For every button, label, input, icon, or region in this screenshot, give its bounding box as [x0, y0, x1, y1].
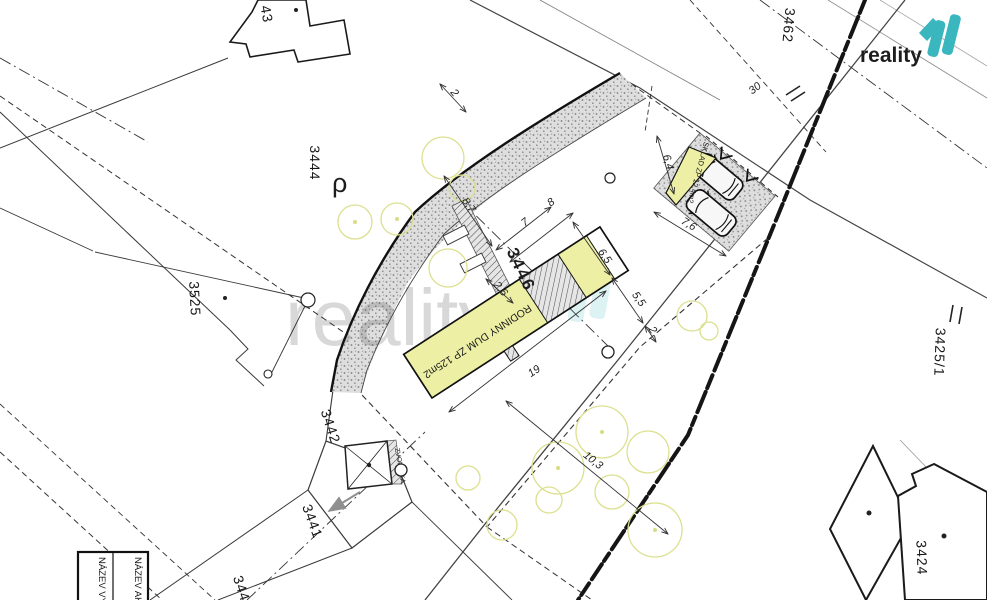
parcel-label: 3424	[913, 540, 930, 576]
dim-label: 2	[447, 86, 461, 99]
parcel-label: 3442	[318, 407, 344, 445]
parking-area: SKLAD ZP 12,4m2	[654, 133, 778, 251]
tree-circle	[487, 510, 517, 540]
dim-label: 8	[545, 195, 558, 209]
logo-mark-icon	[919, 13, 962, 58]
logo-text: reality	[860, 44, 922, 67]
rho-symbol: ρ	[332, 168, 347, 198]
tree-circle	[422, 137, 464, 179]
tree-circle	[595, 475, 629, 509]
tree-circle	[456, 466, 480, 490]
site-plan-svg: reality RODINNY DUM ZP 125m2 SKLAD	[0, 0, 987, 600]
dim-label: 7	[519, 215, 532, 229]
titleblock-col-left: NÁZEV VÝ	[96, 557, 107, 600]
parcel-label: 3425/1	[931, 327, 949, 376]
tree-circle	[627, 431, 669, 473]
tree-circle	[536, 487, 562, 513]
road-surface-mark-icon	[950, 305, 962, 324]
walkway-step	[460, 253, 486, 273]
road-surface-marks	[786, 86, 962, 324]
logo: reality	[860, 13, 962, 67]
titleblock-col-right: NÁZEV AK	[132, 557, 143, 600]
neighbor-building-nw	[230, 0, 350, 62]
neighbor-building-se2	[898, 464, 987, 600]
parcel-label: 43	[258, 4, 277, 24]
dim-label: 19	[526, 363, 543, 380]
dim-label: 2	[645, 324, 659, 337]
title-block: NÁZEV VÝ NÁZEV AK	[78, 552, 148, 600]
road-surface-mark-icon	[786, 86, 805, 101]
parcel-label: 3525	[186, 281, 204, 317]
parcel-label: 344	[230, 573, 253, 600]
bell-tower: ZVONIČKA	[329, 440, 408, 511]
parcel-label: 3462	[779, 7, 798, 43]
parcel-label: 3444	[307, 145, 323, 180]
dim-label: 30	[747, 80, 765, 98]
neighbor-building-se1	[830, 446, 910, 600]
tree-circle	[677, 301, 707, 331]
tree-circle	[700, 322, 718, 340]
